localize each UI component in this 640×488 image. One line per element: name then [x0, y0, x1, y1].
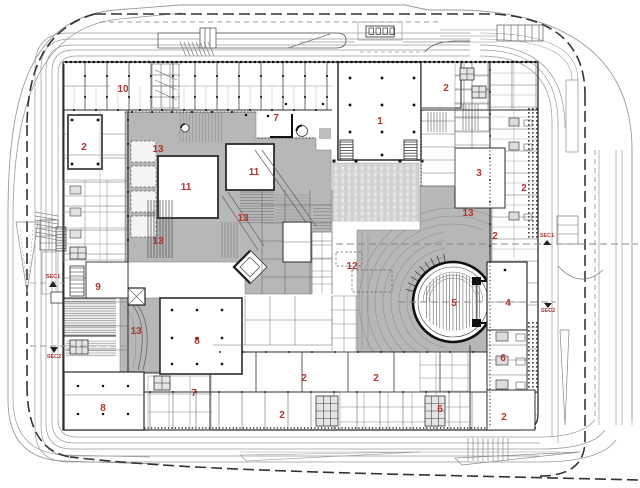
svg-text:6: 6 — [437, 404, 443, 415]
svg-text:2: 2 — [301, 373, 307, 384]
svg-text:SEC2: SEC2 — [541, 308, 555, 314]
svg-text:SEC2: SEC2 — [47, 354, 61, 360]
svg-text:13: 13 — [152, 236, 164, 247]
svg-text:8: 8 — [194, 336, 200, 347]
svg-text:7: 7 — [273, 113, 279, 124]
svg-text:2: 2 — [492, 231, 498, 242]
svg-text:11: 11 — [181, 182, 192, 193]
svg-text:2: 2 — [501, 412, 507, 423]
svg-text:2: 2 — [279, 410, 285, 421]
svg-text:13: 13 — [462, 208, 474, 219]
svg-text:1: 1 — [377, 116, 383, 127]
svg-text:11: 11 — [249, 167, 260, 178]
svg-text:2: 2 — [443, 83, 449, 94]
svg-text:8: 8 — [100, 403, 106, 414]
svg-text:12: 12 — [346, 261, 358, 272]
svg-text:2: 2 — [521, 183, 527, 194]
svg-text:2: 2 — [373, 373, 379, 384]
svg-text:7: 7 — [191, 388, 197, 399]
svg-text:6: 6 — [500, 353, 506, 364]
svg-text:9: 9 — [95, 282, 101, 293]
svg-text:4: 4 — [505, 298, 511, 309]
svg-text:SEC1: SEC1 — [540, 233, 554, 239]
svg-text:SEC1: SEC1 — [46, 274, 60, 280]
svg-text:3: 3 — [476, 168, 482, 179]
svg-text:13: 13 — [152, 144, 164, 155]
svg-text:5: 5 — [451, 298, 457, 309]
svg-text:2: 2 — [81, 142, 87, 153]
svg-text:13: 13 — [130, 326, 142, 337]
svg-text:10: 10 — [117, 84, 129, 95]
svg-text:13: 13 — [237, 213, 249, 224]
